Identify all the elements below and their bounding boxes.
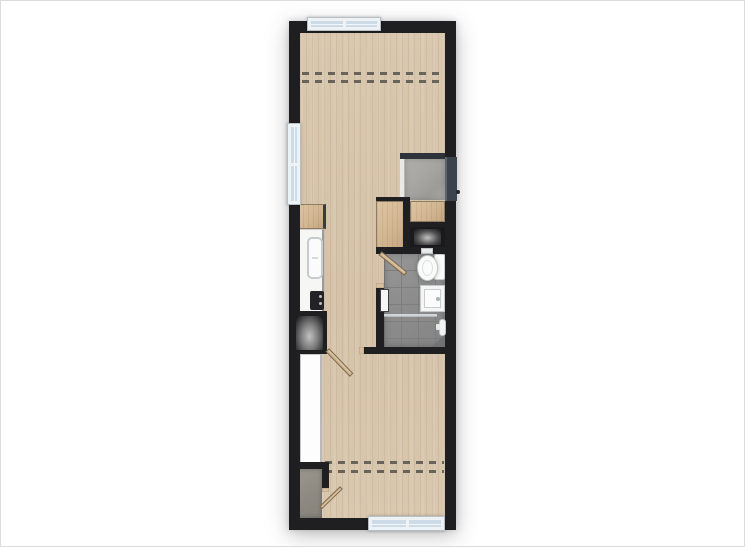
shower-control [439, 319, 446, 336]
bottom-window-mullion [406, 518, 409, 529]
wall-under-shoe-cabinet [410, 222, 445, 227]
tall-wardrobe [376, 201, 404, 251]
wall-west [289, 21, 300, 530]
bottom-window [368, 516, 445, 531]
wardrobe-top-edge [376, 197, 404, 201]
bathroom-wall-top [376, 247, 445, 254]
top-window-mullion [343, 19, 346, 29]
dashed-line-upper-2 [302, 80, 444, 83]
left-window [287, 123, 301, 205]
toilet [417, 255, 438, 281]
cooktop [310, 291, 324, 310]
shower-head [436, 324, 440, 330]
entry-side-panel [400, 159, 405, 200]
wall-end-cap-closet [322, 488, 329, 492]
bathroom-wall-bottom [359, 347, 456, 354]
wall-end-cap-stub [359, 347, 364, 354]
vanity-faucet [436, 297, 440, 301]
left-window-mullion [289, 163, 299, 166]
shoe-cabinet [410, 201, 445, 222]
kitchen-sink [307, 237, 323, 279]
bath-niche [421, 248, 433, 254]
entry-door [445, 157, 457, 201]
dashed-line-lower-1 [325, 461, 444, 464]
top-window [307, 17, 381, 31]
floorplan-canvas [0, 0, 745, 547]
wall-radiator [380, 289, 389, 312]
wall-east [445, 21, 456, 530]
washer-alcove [410, 227, 445, 247]
white-wardrobe [300, 354, 322, 463]
kitchen-upper-cabinet [297, 204, 326, 229]
dashed-line-upper-1 [302, 72, 444, 75]
dashed-line-lower-2 [325, 470, 444, 473]
refrigerator [296, 316, 323, 350]
wall-end-cap-bath [376, 283, 384, 288]
shower-glass-screen [384, 314, 437, 316]
entry-door-knob [456, 190, 460, 194]
entry-partition [400, 153, 445, 159]
entry-concrete-floor [405, 159, 445, 200]
wall-mid-vertical [403, 197, 410, 254]
